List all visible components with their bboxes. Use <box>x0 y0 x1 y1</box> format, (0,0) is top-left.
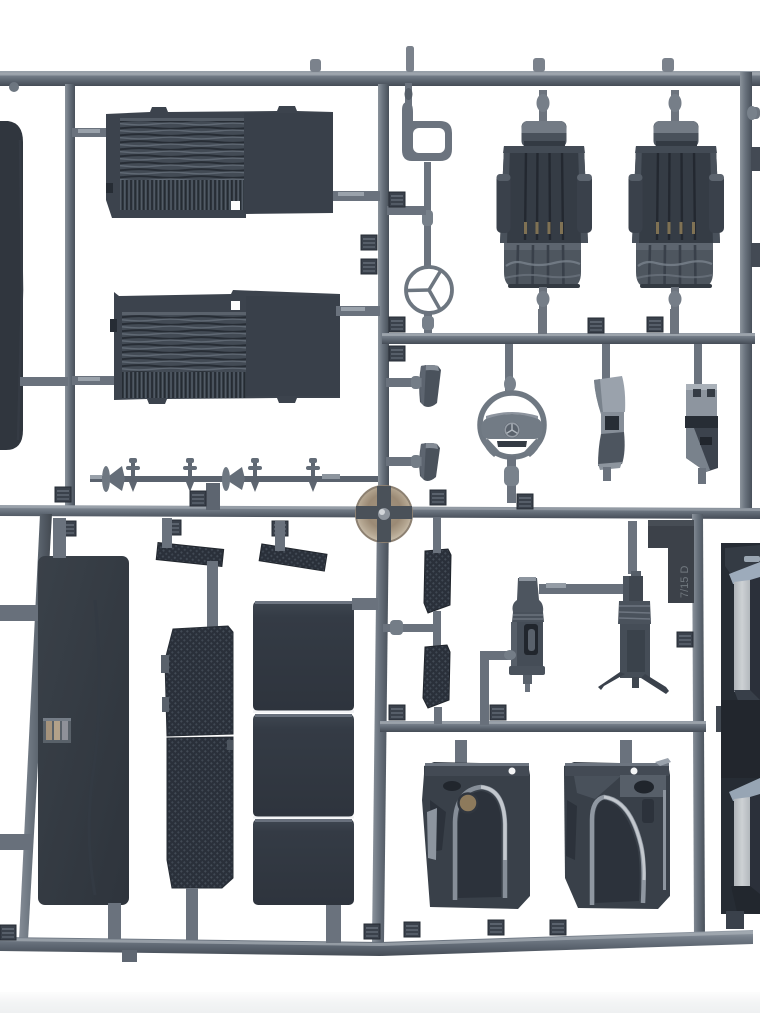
svg-text:7/15 D: 7/15 D <box>679 566 691 598</box>
